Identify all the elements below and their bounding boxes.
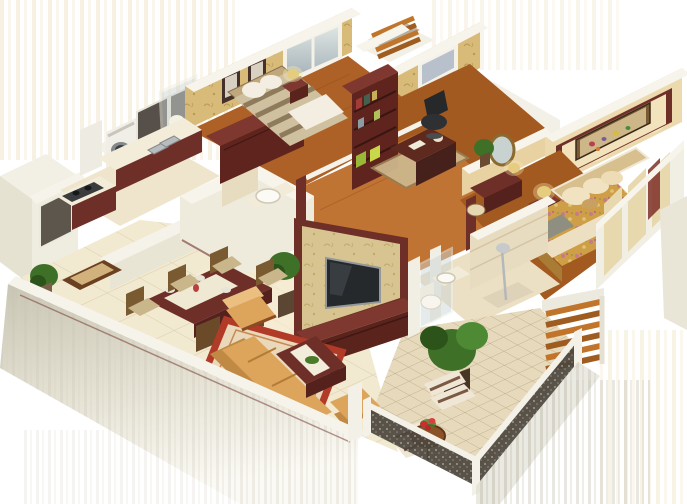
bedroom2-pillow-2 — [260, 75, 282, 89]
shape-root — [0, 0, 687, 504]
artwork-flower-dab-4 — [626, 126, 631, 130]
balcony-flower-2 — [429, 418, 436, 424]
toilet-bowl — [421, 295, 441, 309]
dining-plate-3 — [221, 287, 231, 293]
coffee-table-dish — [305, 356, 319, 364]
floor-plan-scene — [0, 0, 687, 504]
artwork-flower-dab-3 — [613, 131, 619, 136]
balcony-flower-3 — [425, 426, 431, 431]
artwork-flower-dab-2 — [602, 137, 607, 141]
master-pillow-accent — [582, 199, 598, 209]
apartment-3d-floor-plan-render — [0, 0, 687, 504]
office-chair-base — [426, 133, 442, 139]
bath-basin — [437, 273, 455, 283]
guest-bath-basin — [256, 189, 280, 203]
artwork-flower-dab-1 — [589, 142, 595, 147]
dressing-lamp — [508, 163, 520, 173]
front-corner-post — [348, 382, 362, 442]
master-pillow-3 — [601, 171, 623, 185]
cooktop-burner-1 — [73, 191, 80, 196]
balcony-door-jamb-1 — [408, 256, 420, 338]
shower-head — [496, 243, 510, 253]
bedroom2-lamp-shade — [287, 69, 299, 79]
cooktop-burner-2 — [85, 186, 92, 191]
office-chair-seat — [421, 114, 447, 130]
exterior-wall-right — [660, 196, 687, 330]
balcony-plant-highlight — [456, 322, 488, 350]
dressing-stool — [467, 204, 485, 216]
railing-post-1 — [363, 396, 371, 438]
hallway-plant — [474, 139, 494, 157]
master-lamp — [537, 186, 551, 198]
dining-centerpiece — [193, 284, 199, 292]
balcony-plant-shadowleaf — [420, 326, 448, 350]
artwork-flower-dab-5 — [596, 147, 600, 151]
